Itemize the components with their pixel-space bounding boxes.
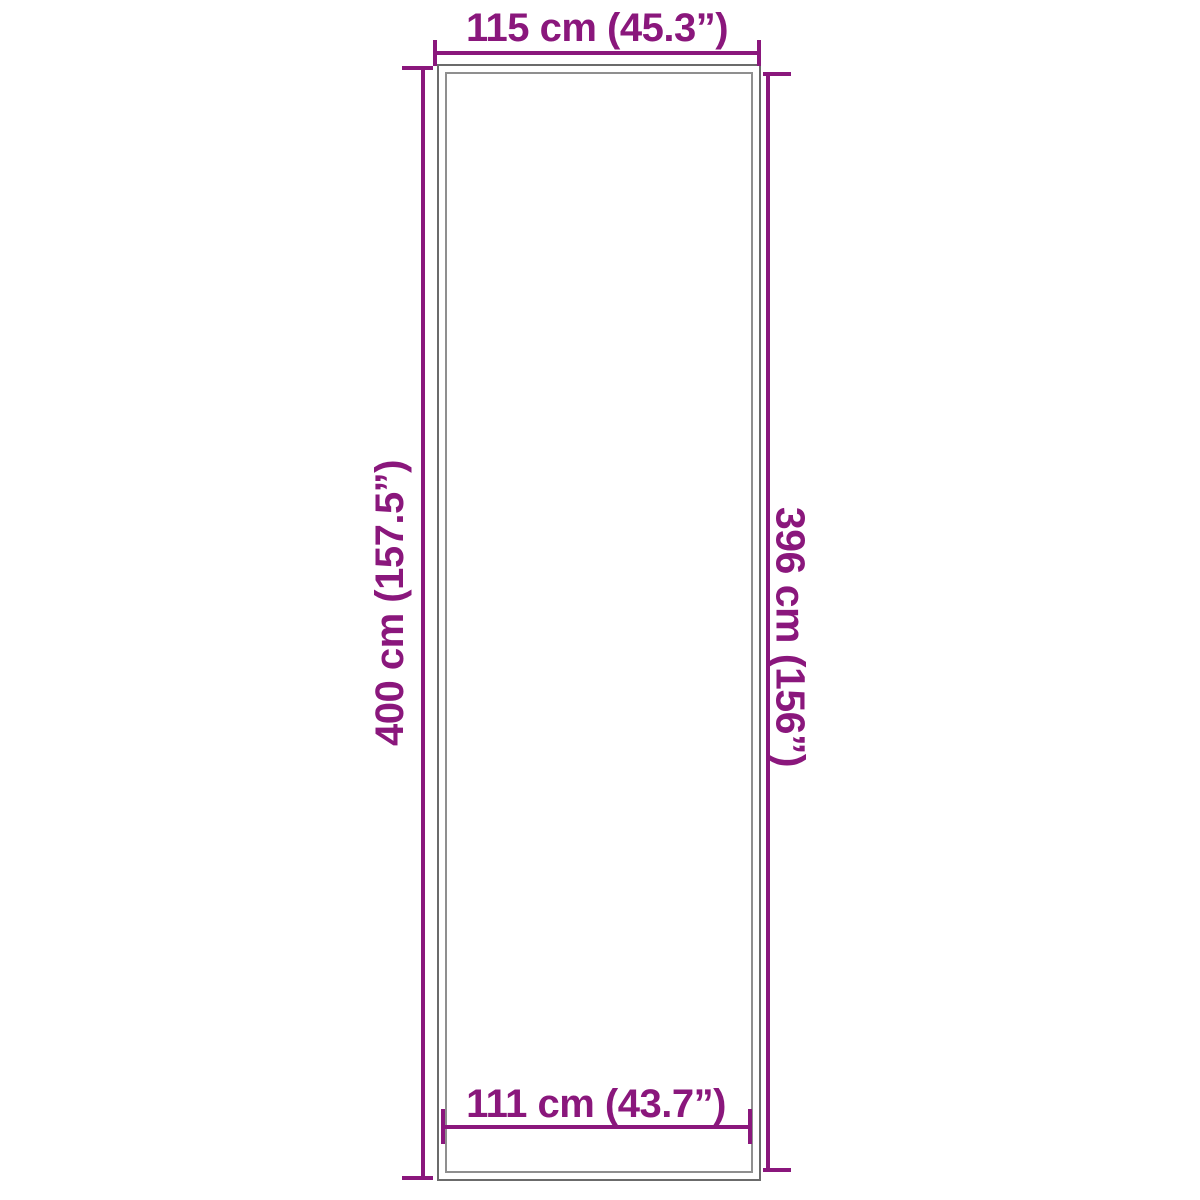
right-height-label: 396 cm (156”) bbox=[770, 507, 811, 767]
top-dimension-tick-left bbox=[433, 40, 437, 66]
top-dimension-tick-right bbox=[757, 40, 761, 66]
bottom-dimension-tick-right bbox=[748, 1109, 752, 1144]
top-width-label: 115 cm (45.3”) bbox=[466, 8, 728, 48]
left-dimension-tick-top bbox=[402, 66, 433, 70]
dimension-diagram: 115 cm (45.3”) 400 cm (157.5”) 396 cm (1… bbox=[0, 0, 1200, 1200]
left-height-label: 400 cm (157.5”) bbox=[370, 460, 410, 746]
product-outline-inner bbox=[445, 72, 753, 1173]
top-dimension-line bbox=[435, 51, 759, 55]
bottom-dimension-tick-left bbox=[441, 1109, 445, 1144]
right-dimension-tick-top bbox=[763, 72, 791, 76]
left-dimension-tick-bottom bbox=[402, 1176, 433, 1180]
bottom-width-label: 111 cm (43.7”) bbox=[466, 1084, 726, 1124]
right-dimension-tick-bottom bbox=[763, 1168, 791, 1172]
left-dimension-line bbox=[421, 66, 425, 1180]
